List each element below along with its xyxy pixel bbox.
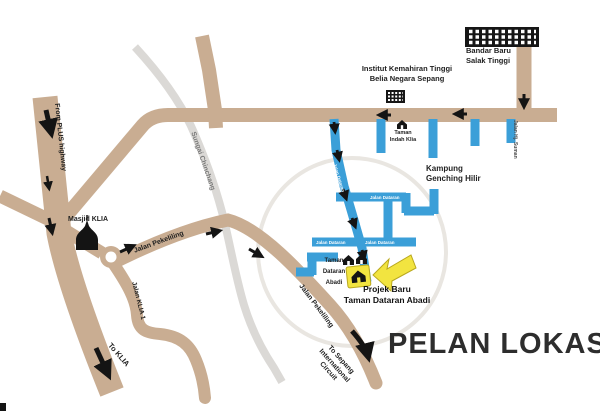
building-icon-institut	[386, 90, 405, 103]
label-bandar-baru: Bandar Baru Salak Tinggi	[466, 46, 511, 65]
label-taman-indah: Taman Indah Klia	[386, 130, 420, 143]
corner-mark	[0, 403, 6, 411]
arrow-street-2	[337, 150, 339, 159]
street-name-3: Jalan Dataran	[316, 240, 346, 245]
label-kampung-genching: Kampung Genching Hilir	[426, 164, 481, 184]
arrow-street-1	[334, 122, 335, 131]
map-title: PELAN LOKASI	[388, 328, 600, 361]
road-jalan-klia-1	[113, 263, 205, 398]
label-institut: Institut Kemahiran Tinggi Belia Negara S…	[350, 64, 464, 83]
location-map: From PLUS highway Sungai Chinchang Masji…	[0, 0, 600, 411]
street-name-4: Jalan Dataran	[365, 240, 395, 245]
label-jalan-hj-suman: Jalan Hj. Suman	[512, 120, 518, 159]
building-icon-bandar-baru	[465, 27, 539, 47]
label-projek-baru: Projek Baru Taman Dataran Abadi	[328, 284, 446, 305]
roundabout-inner	[106, 252, 117, 263]
label-masjid-klia: Masjid KLIA	[68, 216, 108, 223]
street-name-2: Jalan Dataran	[370, 195, 400, 200]
